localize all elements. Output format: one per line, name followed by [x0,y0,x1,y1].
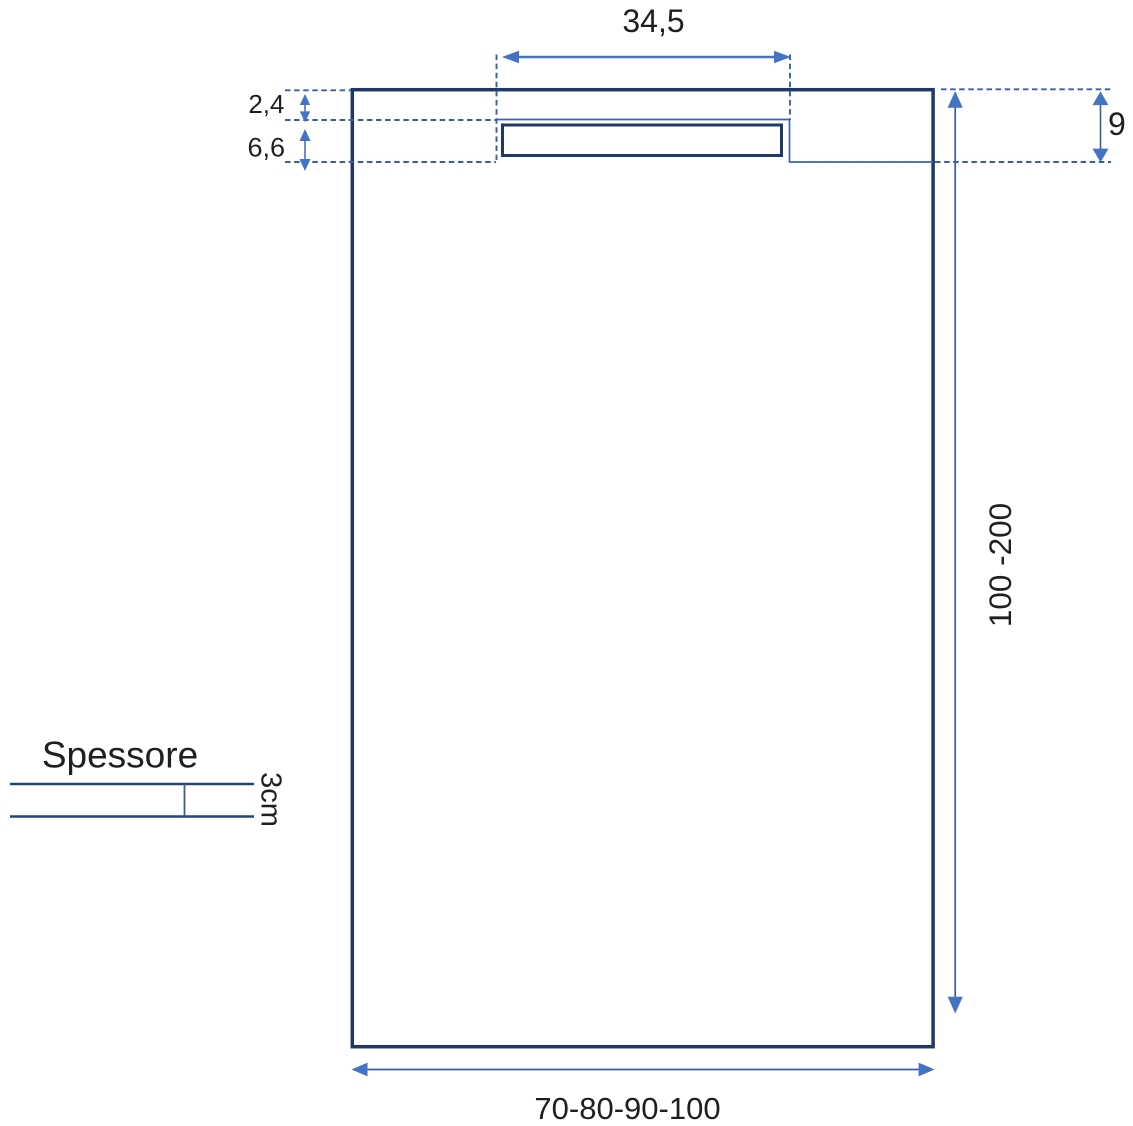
svg-text:34,5: 34,5 [622,3,684,39]
svg-text:2,4: 2,4 [248,89,284,119]
svg-text:9: 9 [1108,106,1126,142]
svg-text:70-80-90-100: 70-80-90-100 [534,1091,720,1126]
svg-text:6,6: 6,6 [247,133,285,163]
svg-text:Spessore: Spessore [42,735,198,776]
svg-text:3cm: 3cm [255,772,287,827]
svg-text:100 -200: 100 -200 [982,503,1018,627]
